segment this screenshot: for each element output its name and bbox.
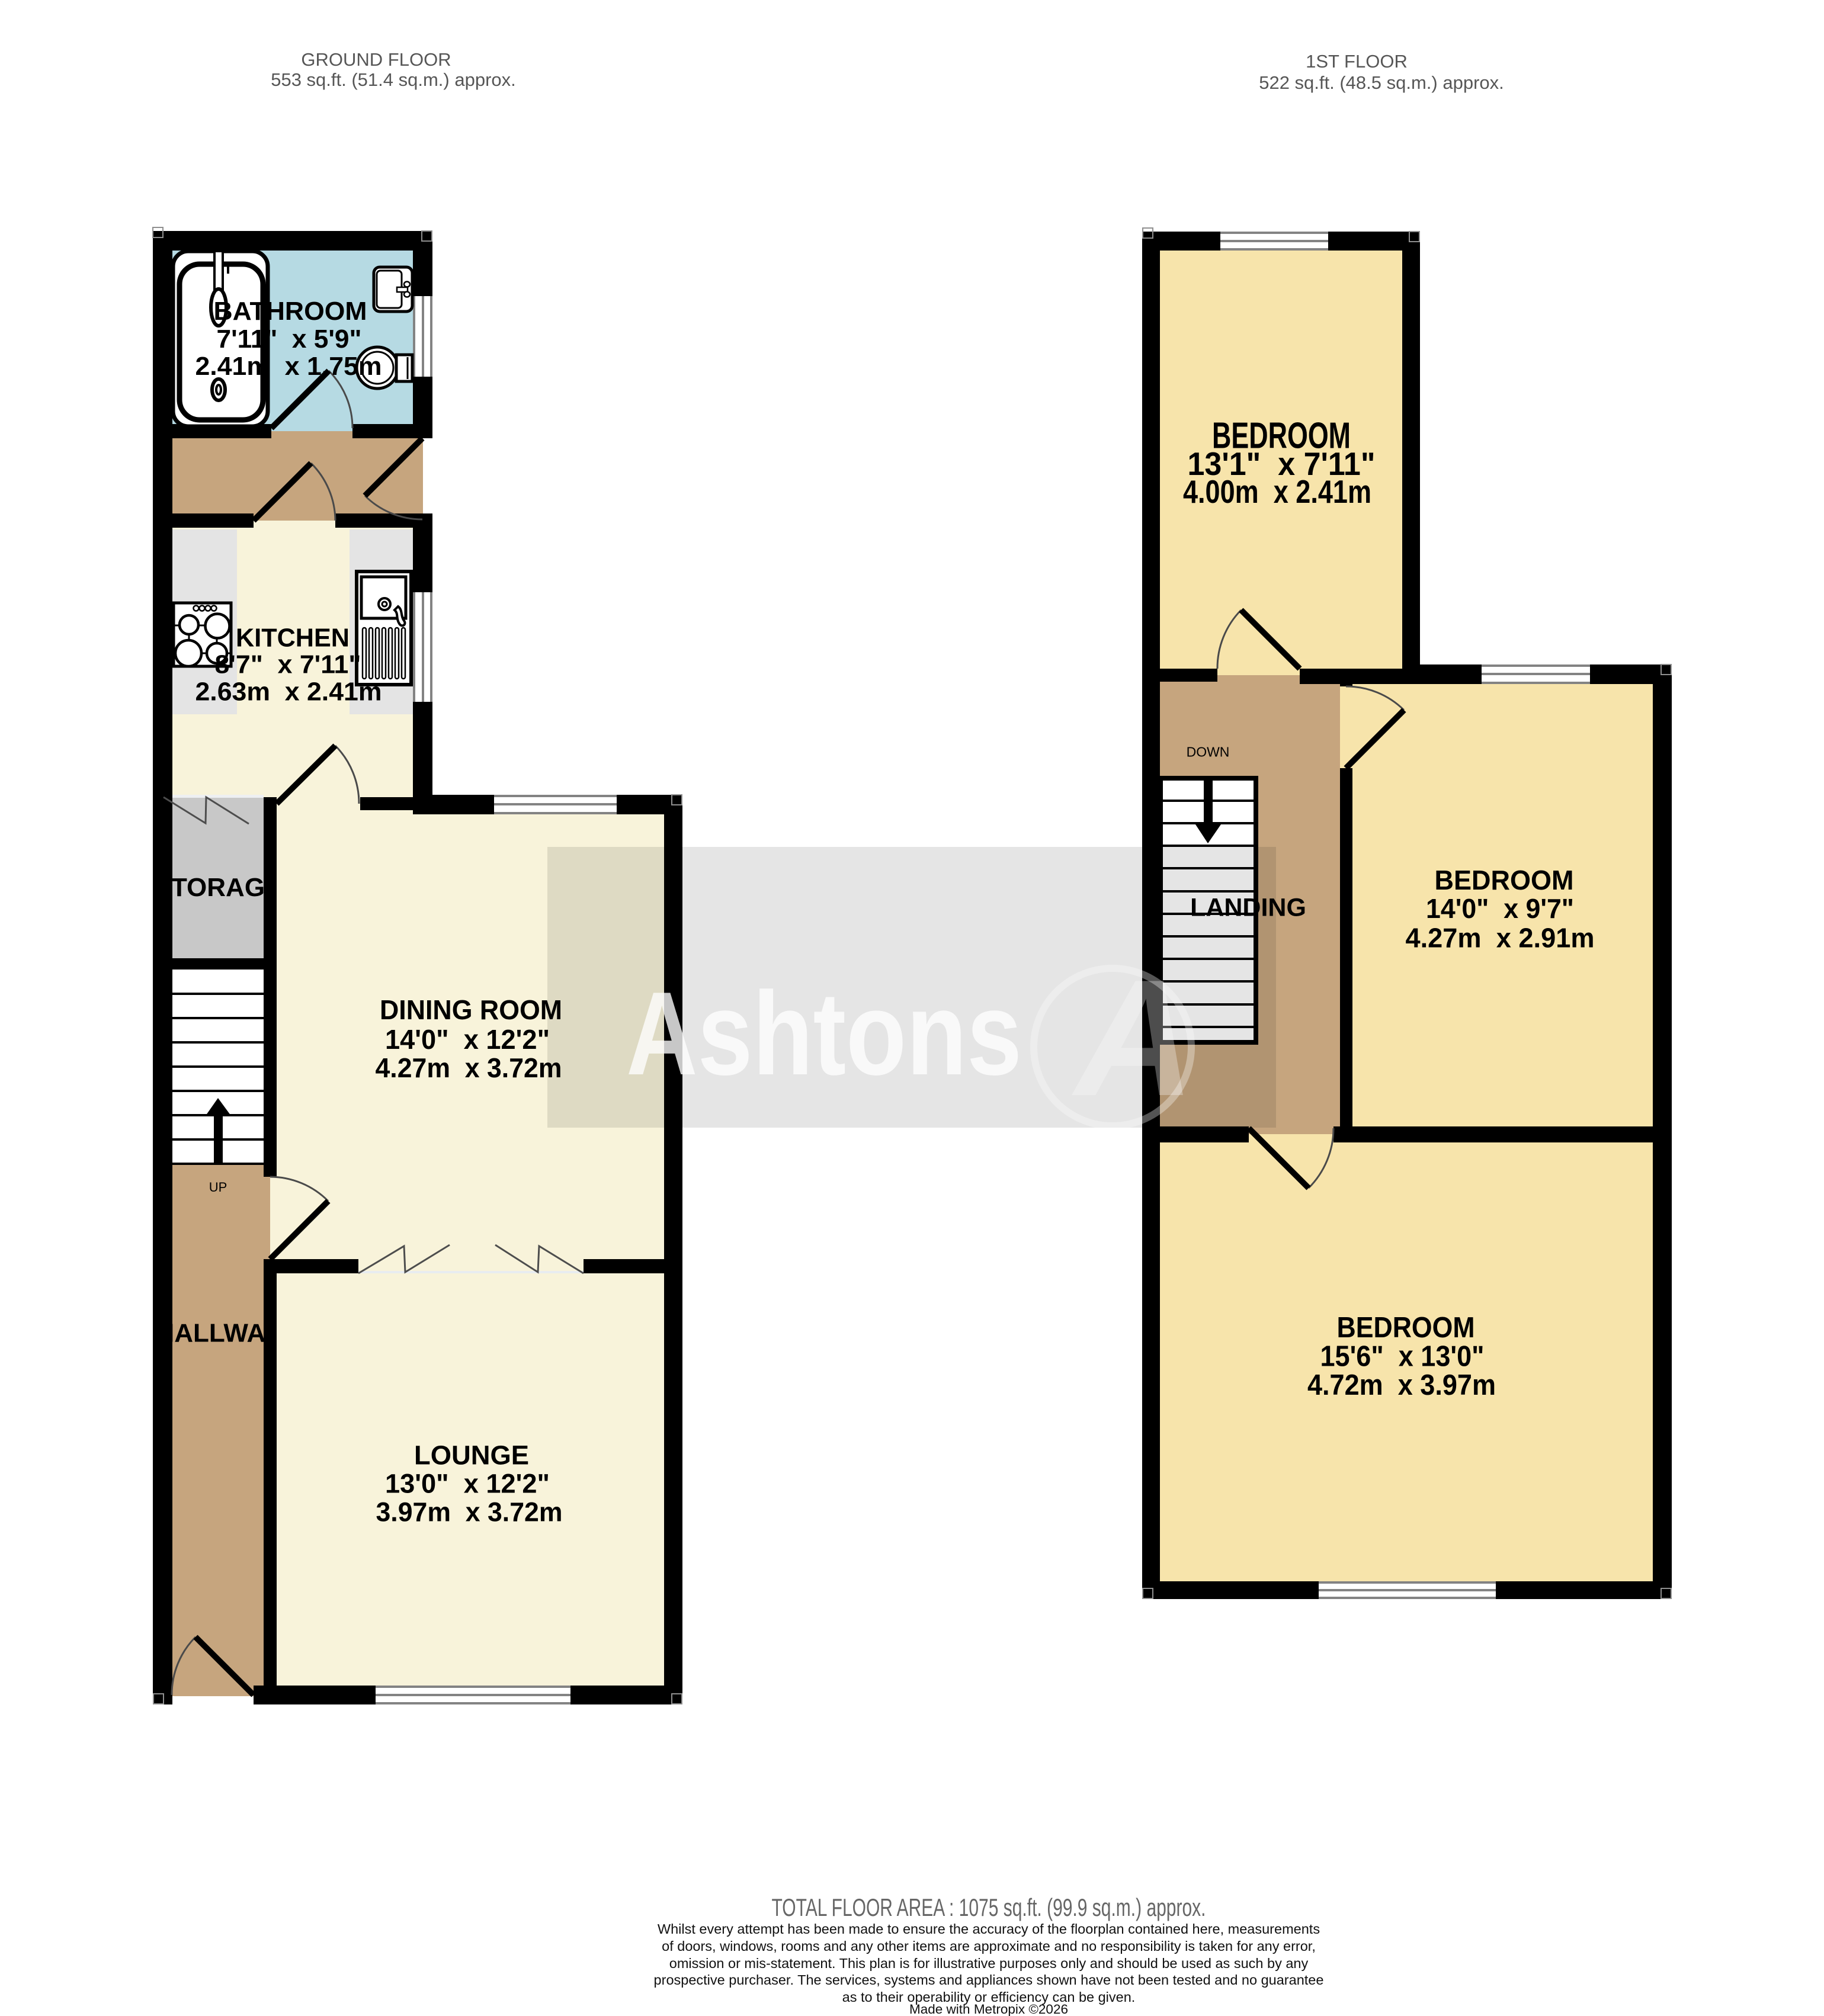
svg-text:A: A [1070,946,1195,1131]
svg-text:Whilst every attempt has been: Whilst every attempt has been made to en… [658,1921,1320,1937]
svg-text:omission or mis-statement. Thi: omission or mis-statement. This plan is … [669,1956,1309,1971]
svg-text:4.27m x 2.91m: 4.27m x 2.91m [1406,922,1595,953]
svg-text:553 sq.ft. (51.4 sq.m.) approx: 553 sq.ft. (51.4 sq.m.) approx. [271,69,516,90]
svg-text:GROUND FLOOR: GROUND FLOOR [301,49,451,70]
svg-text:14'0" x 12'2": 14'0" x 12'2" [385,1024,550,1055]
svg-text:Ashtons: Ashtons [626,968,1022,1100]
svg-text:4.27m x 3.72m: 4.27m x 3.72m [376,1052,562,1083]
svg-text:4.00m x 2.41m: 4.00m x 2.41m [1183,473,1371,510]
svg-text:prospective purchaser. The ser: prospective purchaser. The services, sys… [654,1972,1324,1988]
svg-text:13'0" x 12'2": 13'0" x 12'2" [385,1469,550,1499]
svg-text:KITCHEN: KITCHEN [236,623,350,652]
svg-text:HALLWAY: HALLWAY [155,1319,280,1348]
svg-text:8'7" x 7'11": 8'7" x 7'11" [215,650,361,679]
svg-text:4.72m x 3.97m: 4.72m x 3.97m [1307,1369,1496,1401]
svg-text:BATHROOM: BATHROOM [214,297,367,326]
svg-text:2.41m x 1.75m: 2.41m x 1.75m [195,352,382,381]
svg-text:of doors, windows, rooms and a: of doors, windows, rooms and any other i… [662,1938,1316,1954]
svg-text:2.63m x 2.41m: 2.63m x 2.41m [195,677,382,706]
svg-text:1ST FLOOR: 1ST FLOOR [1306,51,1408,72]
svg-text:BEDROOM: BEDROOM [1337,1312,1475,1344]
svg-text:LANDING: LANDING [1190,894,1306,922]
svg-text:LOUNGE: LOUNGE [414,1440,529,1471]
svg-text:TOTAL FLOOR AREA : 1075 sq.ft.: TOTAL FLOOR AREA : 1075 sq.ft. (99.9 sq.… [772,1893,1206,1921]
svg-text:14'0" x 9'7": 14'0" x 9'7" [1426,893,1574,924]
svg-text:Made with Metropix ©2026: Made with Metropix ©2026 [909,2002,1068,2016]
svg-text:STORAGE: STORAGE [154,873,283,902]
svg-text:DINING ROOM: DINING ROOM [380,994,562,1025]
svg-text:522 sq.ft. (48.5 sq.m.) approx: 522 sq.ft. (48.5 sq.m.) approx. [1259,72,1504,93]
svg-text:UP: UP [209,1180,227,1195]
svg-text:7'11" x 5'9": 7'11" x 5'9" [217,325,362,354]
svg-text:15'6" x 13'0": 15'6" x 13'0" [1320,1341,1485,1373]
svg-text:DOWN: DOWN [1187,744,1230,759]
svg-text:BEDROOM: BEDROOM [1435,865,1574,895]
svg-text:3.97m x 3.72m: 3.97m x 3.72m [376,1497,563,1527]
